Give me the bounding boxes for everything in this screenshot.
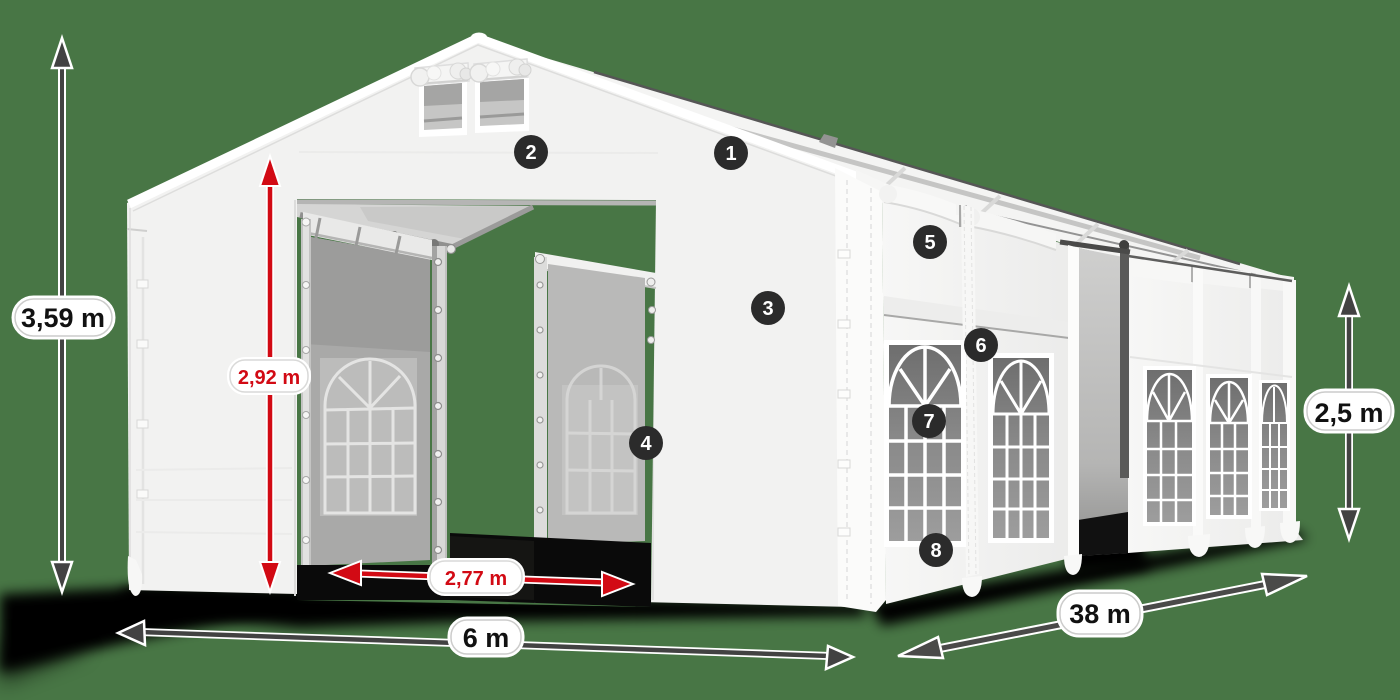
svg-text:8: 8: [930, 540, 941, 562]
svg-text:38 m: 38 m: [1069, 599, 1131, 629]
svg-text:2,5 m: 2,5 m: [1314, 398, 1383, 428]
svg-text:3: 3: [762, 298, 773, 320]
svg-text:1: 1: [725, 143, 736, 165]
svg-text:5: 5: [924, 232, 935, 254]
svg-text:7: 7: [923, 411, 934, 433]
svg-text:3,59 m: 3,59 m: [21, 303, 105, 333]
svg-text:2: 2: [525, 142, 536, 164]
svg-text:2,77 m: 2,77 m: [445, 568, 507, 590]
svg-text:6: 6: [975, 335, 986, 357]
svg-text:4: 4: [640, 433, 652, 455]
svg-text:2,92 m: 2,92 m: [238, 367, 300, 389]
svg-text:6 m: 6 m: [463, 623, 510, 653]
